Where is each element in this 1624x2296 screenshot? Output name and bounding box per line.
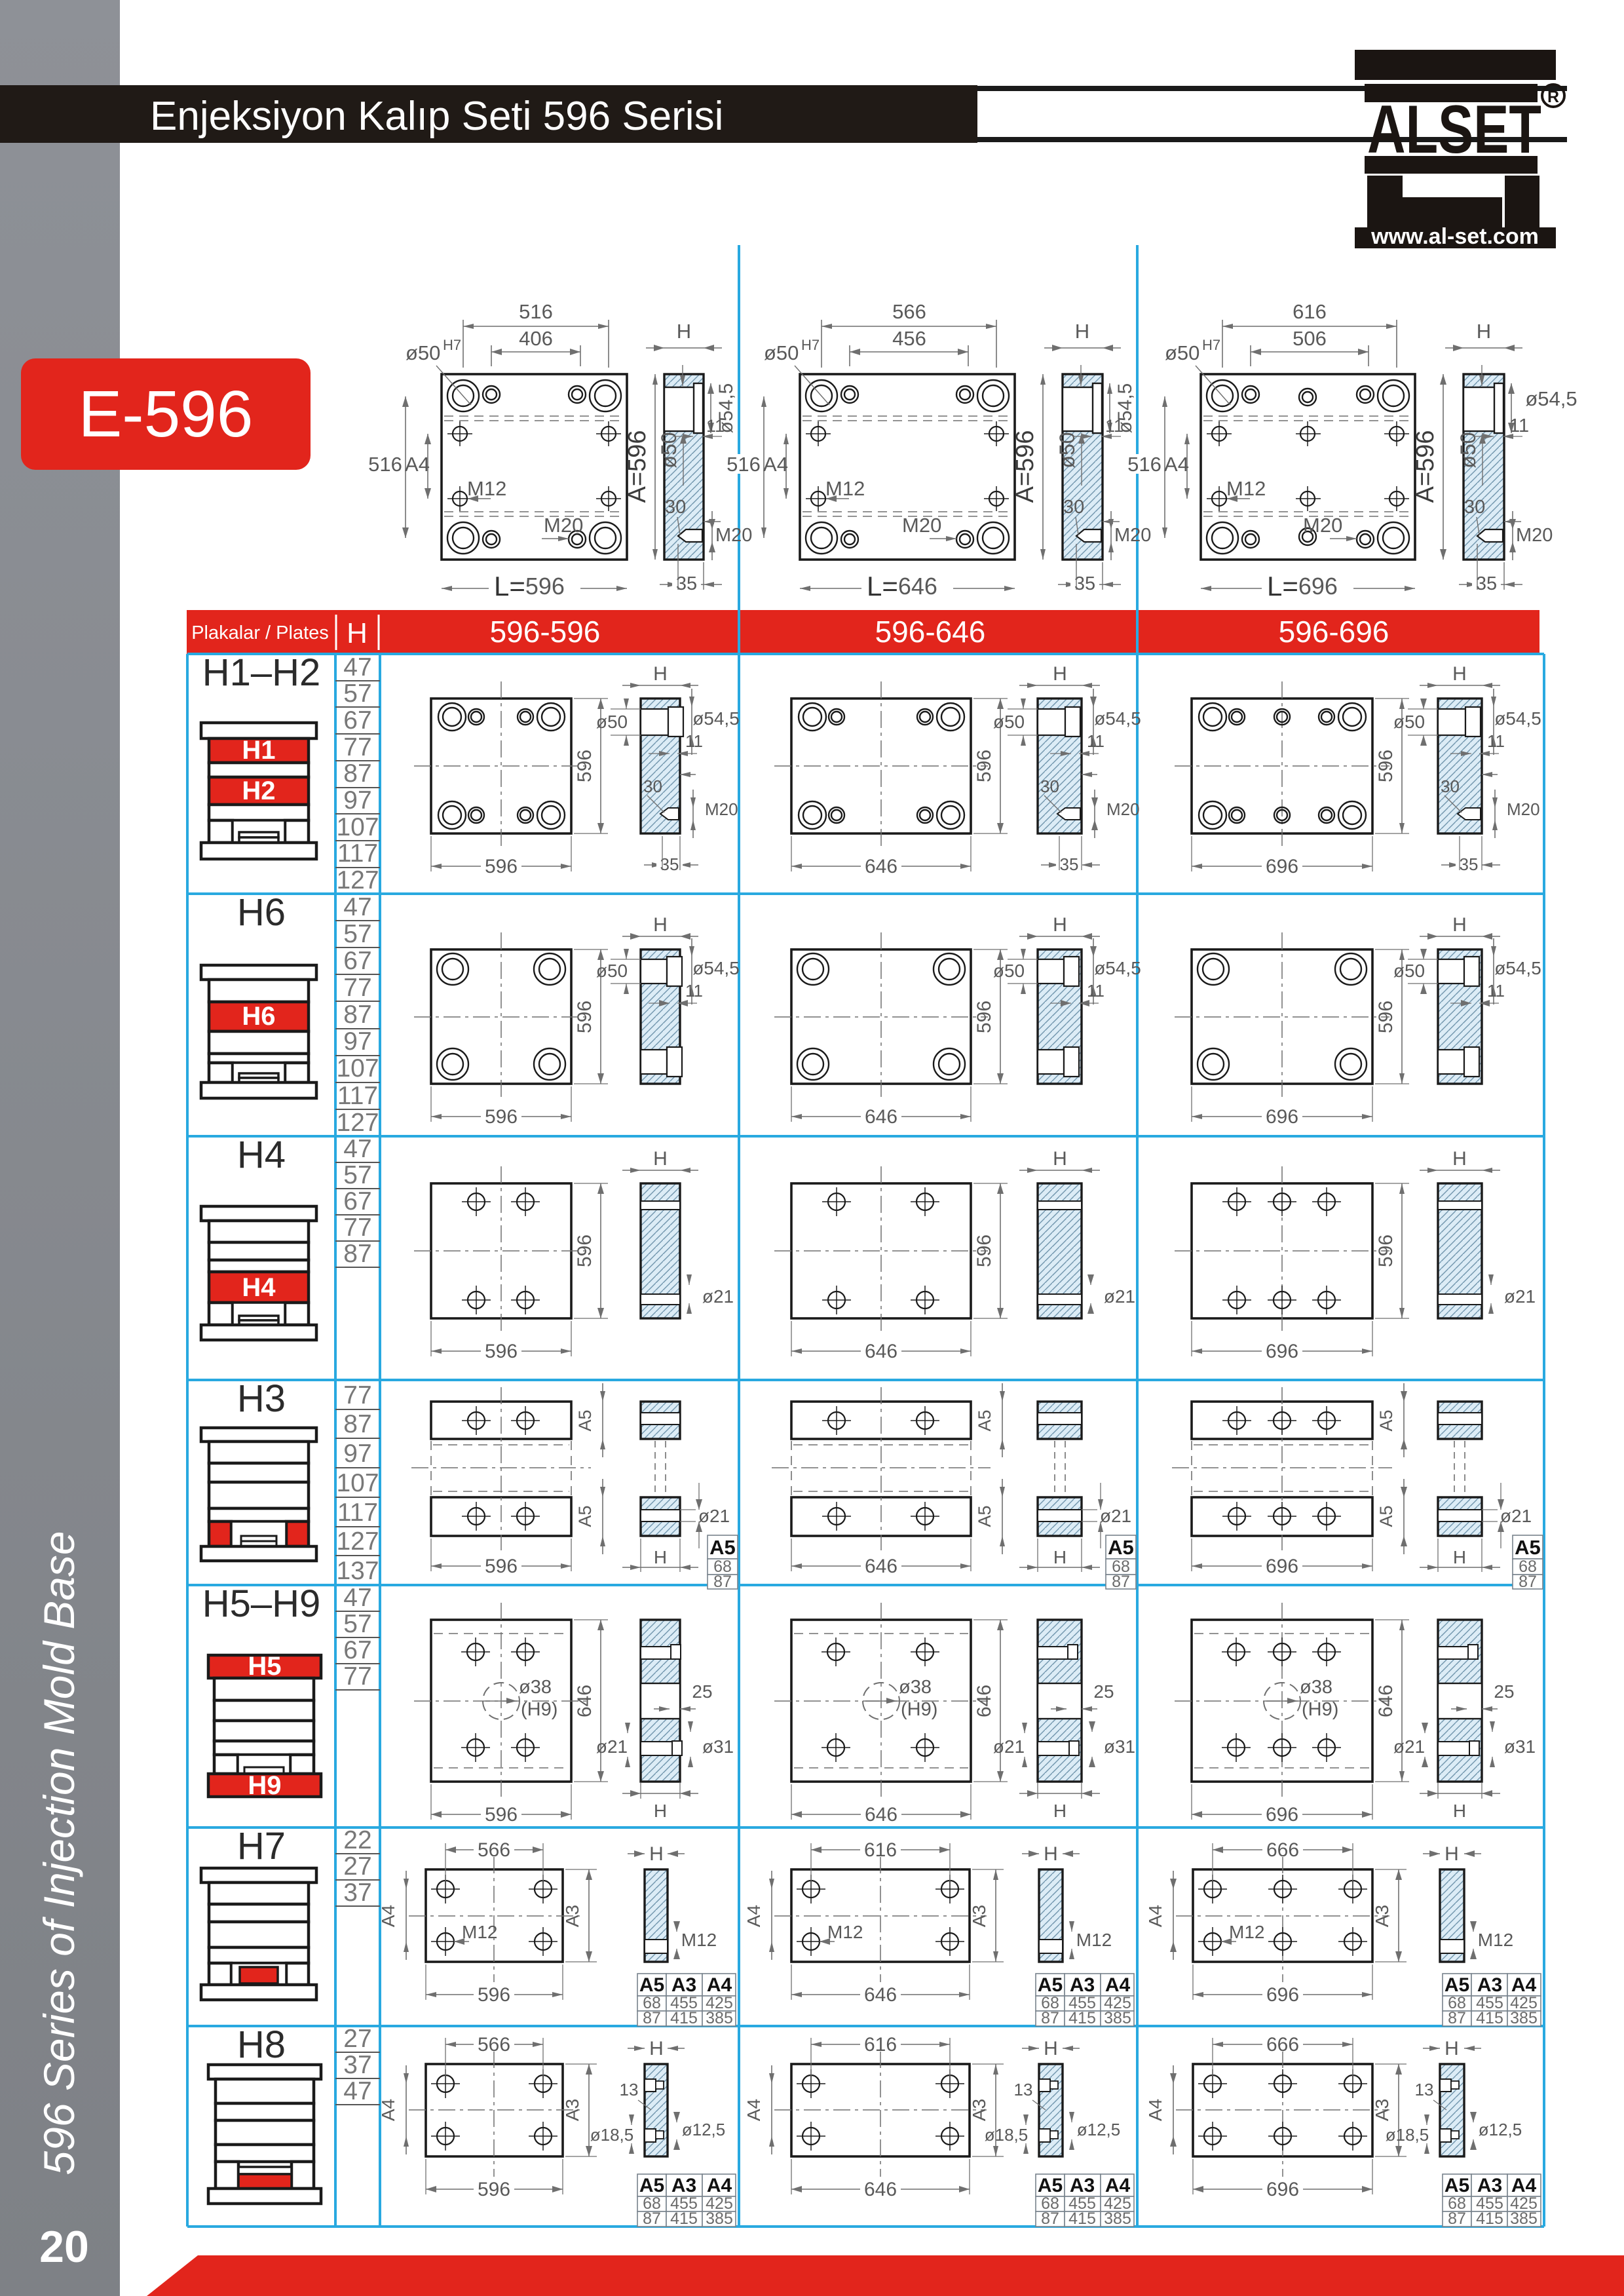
svg-text:87: 87 (713, 1573, 732, 1591)
svg-text:A5: A5 (639, 1974, 664, 1996)
svg-text:ø21: ø21 (1504, 1286, 1536, 1307)
svg-text:696: 696 (1266, 1341, 1298, 1362)
svg-text:(H9): (H9) (901, 1699, 937, 1720)
svg-text:596: 596 (973, 750, 995, 782)
svg-text:57: 57 (343, 920, 371, 948)
svg-text:57: 57 (343, 1610, 371, 1638)
svg-text:646: 646 (865, 856, 897, 877)
svg-text:596: 596 (574, 1001, 595, 1033)
svg-text:37: 37 (343, 2051, 371, 2079)
svg-text:11: 11 (1509, 415, 1529, 436)
svg-text:646: 646 (574, 1685, 595, 1717)
svg-text:A5: A5 (1515, 1536, 1541, 1559)
svg-text:646: 646 (865, 1106, 897, 1128)
svg-text:H: H (677, 320, 691, 343)
svg-text:H: H (1477, 320, 1491, 343)
svg-text:77: 77 (343, 1662, 371, 1691)
svg-text:87: 87 (1448, 2009, 1466, 2027)
svg-text:ø21: ø21 (596, 1736, 628, 1757)
svg-text:A3: A3 (671, 2175, 696, 2196)
svg-text:M20: M20 (1507, 799, 1540, 819)
svg-text:87: 87 (343, 1240, 371, 1268)
svg-text:30: 30 (1464, 497, 1485, 518)
svg-text:35: 35 (1074, 573, 1095, 594)
svg-text:A5: A5 (575, 1505, 595, 1527)
svg-text:516: 516 (727, 453, 761, 476)
svg-text:25: 25 (692, 1681, 712, 1702)
svg-text:L=696: L=696 (1267, 571, 1338, 602)
svg-text:57: 57 (343, 1161, 371, 1189)
svg-text:M12: M12 (825, 477, 865, 500)
svg-text:27: 27 (343, 1852, 371, 1881)
svg-text:385: 385 (706, 2210, 733, 2228)
svg-text:87: 87 (1519, 1573, 1537, 1591)
svg-text:516: 516 (519, 300, 553, 323)
svg-text:M20: M20 (1114, 525, 1151, 546)
svg-text:11: 11 (685, 981, 703, 1001)
svg-text:566: 566 (478, 2034, 510, 2056)
svg-text:57: 57 (343, 679, 371, 708)
svg-text:646: 646 (1375, 1685, 1397, 1717)
svg-text:117: 117 (337, 839, 378, 868)
svg-text:ø38: ø38 (519, 1677, 552, 1698)
svg-text:67: 67 (343, 706, 371, 735)
svg-text:696: 696 (1266, 1106, 1298, 1128)
svg-text:H: H (1053, 1801, 1067, 1821)
svg-text:87: 87 (343, 1410, 371, 1438)
svg-text:11: 11 (1087, 981, 1105, 1001)
svg-text:87: 87 (343, 1001, 371, 1029)
svg-text:566: 566 (892, 300, 926, 323)
svg-text:H: H (649, 1843, 664, 1865)
svg-text:ø54,5: ø54,5 (692, 958, 740, 978)
svg-text:M12: M12 (681, 1930, 717, 1950)
svg-text:H7: H7 (1202, 337, 1220, 353)
svg-text:406: 406 (519, 327, 553, 350)
svg-text:H9: H9 (248, 1771, 281, 1800)
svg-text:ø50: ø50 (1456, 432, 1480, 468)
svg-text:87: 87 (643, 2009, 661, 2027)
svg-text:A3: A3 (1070, 2175, 1095, 2196)
svg-text:596: 596 (1375, 1001, 1397, 1033)
svg-text:646: 646 (865, 1804, 897, 1826)
svg-text:H: H (1445, 2038, 1459, 2059)
svg-text:H7: H7 (237, 1825, 286, 1867)
svg-text:H7: H7 (801, 337, 820, 353)
svg-text:646: 646 (864, 2179, 897, 2200)
svg-text:13: 13 (1014, 2080, 1033, 2099)
svg-text:(H9): (H9) (1302, 1699, 1338, 1720)
svg-text:35: 35 (660, 854, 679, 874)
svg-text:77: 77 (343, 1214, 371, 1242)
svg-text:A4: A4 (744, 2099, 764, 2121)
svg-text:385: 385 (1510, 2210, 1538, 2228)
svg-text:30: 30 (665, 497, 686, 518)
svg-text:H7: H7 (443, 337, 461, 353)
svg-text:646: 646 (865, 1341, 897, 1362)
svg-text:H: H (347, 617, 368, 649)
svg-text:ø21: ø21 (1393, 1736, 1425, 1757)
svg-text:A3: A3 (1372, 1905, 1392, 1927)
svg-text:H: H (1445, 1843, 1459, 1865)
svg-text:127: 127 (336, 866, 379, 894)
svg-text:A4: A4 (405, 453, 430, 476)
svg-text:A4: A4 (763, 453, 788, 476)
svg-text:97: 97 (343, 1027, 371, 1056)
svg-text:117: 117 (337, 1082, 378, 1110)
svg-text:H: H (1053, 663, 1067, 685)
svg-text:415: 415 (670, 2210, 698, 2228)
svg-text:H: H (1452, 1148, 1467, 1170)
svg-text:ø12,5: ø12,5 (1479, 2120, 1522, 2139)
svg-text:47: 47 (343, 1584, 371, 1612)
svg-text:596: 596 (478, 1984, 510, 2006)
svg-text:M20: M20 (544, 514, 583, 537)
svg-text:35: 35 (1476, 573, 1497, 594)
svg-text:M12: M12 (1226, 477, 1266, 500)
svg-text:67: 67 (343, 947, 371, 975)
svg-text:H4: H4 (242, 1273, 276, 1302)
svg-text:47: 47 (343, 893, 371, 921)
svg-text:ø31: ø31 (1104, 1736, 1135, 1757)
svg-text:H: H (1453, 1801, 1466, 1821)
svg-text:www.al-set.com: www.al-set.com (1370, 224, 1539, 249)
svg-text:ø50: ø50 (1393, 961, 1425, 981)
svg-text:616: 616 (864, 2034, 897, 2056)
svg-text:67: 67 (343, 1187, 371, 1215)
svg-text:47: 47 (343, 1135, 371, 1163)
svg-text:H3: H3 (237, 1377, 286, 1420)
svg-text:A4: A4 (707, 1974, 732, 1996)
svg-text:596: 596 (973, 1001, 995, 1033)
svg-text:A5: A5 (1376, 1505, 1396, 1527)
svg-text:H: H (1053, 914, 1067, 936)
svg-text:H: H (1044, 2038, 1058, 2059)
svg-text:ø50: ø50 (1165, 341, 1199, 364)
svg-text:ø50: ø50 (764, 341, 799, 364)
svg-text:107: 107 (336, 1469, 379, 1497)
svg-text:H: H (1044, 1843, 1058, 1865)
svg-text:ø31: ø31 (1504, 1736, 1536, 1757)
svg-text:H: H (653, 1148, 668, 1170)
svg-text:M20: M20 (1516, 525, 1553, 546)
svg-text:ø50: ø50 (657, 432, 681, 468)
svg-text:646: 646 (864, 1984, 897, 2006)
svg-text:37: 37 (343, 1879, 371, 1907)
svg-text:A4: A4 (707, 2175, 732, 2196)
svg-text:11: 11 (1087, 731, 1105, 751)
svg-text:385: 385 (1104, 2009, 1131, 2027)
svg-text:A4: A4 (378, 2099, 398, 2121)
svg-text:H1: H1 (242, 736, 275, 765)
svg-text:H: H (654, 1547, 667, 1567)
svg-text:A4: A4 (1511, 1974, 1537, 1996)
svg-text:77: 77 (343, 974, 371, 1002)
svg-text:A4: A4 (378, 1905, 398, 1927)
svg-text:ø12,5: ø12,5 (1077, 2120, 1121, 2139)
svg-text:A=596: A=596 (624, 430, 651, 503)
svg-text:H5: H5 (248, 1652, 281, 1681)
svg-text:596: 596 (973, 1234, 995, 1267)
svg-text:A5: A5 (1445, 2175, 1469, 2196)
svg-text:ø31: ø31 (702, 1736, 734, 1757)
svg-text:ø21: ø21 (1500, 1506, 1532, 1526)
svg-text:A5: A5 (575, 1409, 595, 1431)
svg-text:ø54,5: ø54,5 (1094, 958, 1141, 978)
svg-text:415: 415 (670, 2009, 698, 2027)
svg-text:506: 506 (1293, 327, 1327, 350)
svg-text:A5: A5 (1376, 1409, 1396, 1431)
svg-text:596: 596 (478, 2179, 510, 2200)
svg-text:M12: M12 (467, 477, 506, 500)
svg-text:A5: A5 (1038, 1974, 1063, 1996)
svg-text:696: 696 (1266, 856, 1298, 877)
svg-text:ø18,5: ø18,5 (985, 2125, 1029, 2145)
svg-text:30: 30 (1040, 776, 1059, 796)
svg-text:H: H (1453, 1547, 1466, 1567)
svg-text:456: 456 (892, 327, 926, 350)
svg-text:77: 77 (343, 733, 371, 761)
svg-text:696: 696 (1266, 2179, 1299, 2200)
svg-text:566: 566 (478, 1839, 510, 1861)
svg-text:87: 87 (1041, 2210, 1059, 2228)
svg-text:127: 127 (336, 1527, 379, 1556)
svg-text:A3: A3 (562, 2099, 582, 2121)
svg-text:696: 696 (1266, 1556, 1298, 1577)
svg-text:ø21: ø21 (1104, 1286, 1135, 1307)
svg-text:ø50: ø50 (1393, 712, 1425, 732)
svg-text:666: 666 (1266, 1839, 1299, 1861)
svg-text:596 Series of Injection Mold B: 596 Series of Injection Mold Base (35, 1531, 83, 2175)
svg-text:ø38: ø38 (1300, 1677, 1332, 1698)
svg-text:11: 11 (706, 416, 725, 436)
svg-text:ø18,5: ø18,5 (1386, 2125, 1429, 2145)
svg-text:H6: H6 (237, 891, 286, 934)
svg-text:M20: M20 (1106, 799, 1140, 819)
svg-text:(H9): (H9) (521, 1699, 557, 1720)
svg-text:137: 137 (336, 1557, 379, 1585)
svg-text:666: 666 (1266, 2034, 1299, 2056)
svg-text:22: 22 (343, 1826, 371, 1854)
svg-text:ø50: ø50 (406, 341, 440, 364)
svg-text:596-646: 596-646 (875, 615, 986, 649)
svg-text:ø54,5: ø54,5 (692, 708, 740, 729)
svg-text:596: 596 (1375, 750, 1397, 782)
svg-text:516: 516 (1127, 453, 1161, 476)
svg-text:A5: A5 (1038, 2175, 1063, 2196)
svg-text:ø21: ø21 (698, 1506, 730, 1526)
svg-text:A4: A4 (1145, 1905, 1165, 1927)
svg-text:A4: A4 (1145, 2099, 1165, 2121)
svg-text:596: 596 (485, 1556, 518, 1577)
svg-text:107: 107 (336, 813, 379, 841)
svg-text:67: 67 (343, 1636, 371, 1664)
svg-text:87: 87 (1112, 1573, 1130, 1591)
svg-text:415: 415 (1476, 2009, 1503, 2027)
svg-text:M20: M20 (902, 514, 941, 537)
svg-text:A4: A4 (1164, 453, 1189, 476)
svg-text:47: 47 (343, 653, 371, 681)
svg-text:30: 30 (1063, 497, 1084, 518)
svg-text:87: 87 (643, 2210, 661, 2228)
svg-text:M12: M12 (1076, 1930, 1112, 1950)
svg-text:385: 385 (1510, 2009, 1538, 2027)
svg-text:M12: M12 (462, 1922, 497, 1942)
svg-text:H4: H4 (237, 1134, 286, 1176)
svg-text:ø54,5: ø54,5 (1094, 708, 1141, 729)
svg-text:696: 696 (1266, 1984, 1299, 2006)
svg-text:596: 596 (574, 750, 595, 782)
svg-text:A4: A4 (1511, 2175, 1537, 2196)
svg-text:R: R (1547, 88, 1559, 106)
svg-text:M12: M12 (1478, 1930, 1513, 1950)
svg-text:696: 696 (1266, 1804, 1298, 1826)
svg-text:87: 87 (1448, 2210, 1466, 2228)
svg-text:A4: A4 (744, 1905, 764, 1927)
svg-text:87: 87 (343, 759, 371, 788)
svg-text:646: 646 (973, 1685, 995, 1717)
svg-text:30: 30 (1441, 776, 1460, 796)
svg-text:ø12,5: ø12,5 (682, 2120, 726, 2139)
svg-text:ø54,5: ø54,5 (1494, 958, 1541, 978)
svg-text:M20: M20 (1303, 514, 1342, 537)
svg-text:A5: A5 (975, 1409, 994, 1431)
svg-text:77: 77 (343, 1381, 371, 1409)
svg-text:30: 30 (643, 776, 662, 796)
svg-text:A3: A3 (1372, 2099, 1392, 2121)
svg-text:H: H (654, 1801, 667, 1821)
svg-text:A5: A5 (1445, 1974, 1469, 1996)
svg-text:646: 646 (865, 1556, 897, 1577)
svg-text:Plakalar / Plates: Plakalar / Plates (191, 622, 329, 643)
svg-text:L=596: L=596 (494, 571, 565, 602)
svg-text:H: H (1075, 320, 1089, 343)
svg-text:Enjeksiyon Kalıp Seti 596 Seri: Enjeksiyon Kalıp Seti 596 Serisi (150, 94, 723, 139)
svg-text:127: 127 (336, 1109, 379, 1137)
svg-text:ø38: ø38 (899, 1677, 932, 1698)
svg-text:596: 596 (1375, 1234, 1397, 1267)
svg-text:A5: A5 (1108, 1536, 1134, 1559)
svg-text:415: 415 (1476, 2210, 1503, 2228)
svg-text:87: 87 (1041, 2009, 1059, 2027)
svg-text:ø50: ø50 (1055, 432, 1079, 468)
svg-text:ø21: ø21 (1100, 1506, 1131, 1526)
svg-text:616: 616 (864, 1839, 897, 1861)
svg-text:385: 385 (1104, 2210, 1131, 2228)
svg-text:596: 596 (485, 1804, 518, 1826)
svg-text:ø50: ø50 (993, 961, 1025, 981)
svg-text:11: 11 (1487, 731, 1505, 751)
svg-text:A=596: A=596 (1412, 430, 1439, 503)
svg-text:H: H (653, 914, 668, 936)
svg-text:H6: H6 (242, 1002, 275, 1031)
svg-text:H1–H2: H1–H2 (202, 651, 321, 694)
svg-text:M20: M20 (705, 799, 738, 819)
svg-text:ø18,5: ø18,5 (590, 2125, 634, 2145)
svg-text:27: 27 (343, 2025, 371, 2053)
svg-text:A5: A5 (709, 1536, 736, 1559)
svg-text:415: 415 (1068, 2009, 1096, 2027)
svg-text:596: 596 (485, 1106, 518, 1128)
svg-text:A4: A4 (1105, 1974, 1131, 1996)
svg-text:ø54,5: ø54,5 (1494, 708, 1541, 729)
svg-text:A5: A5 (639, 2175, 664, 2196)
svg-text:ø50: ø50 (596, 961, 628, 981)
svg-text:H: H (653, 663, 668, 685)
svg-text:35: 35 (676, 573, 697, 594)
svg-text:ø50: ø50 (596, 712, 628, 732)
svg-text:ALSET: ALSET (1367, 91, 1541, 167)
svg-text:A3: A3 (1070, 1974, 1095, 1996)
svg-text:117: 117 (337, 1499, 378, 1527)
svg-text:A3: A3 (1477, 1974, 1502, 1996)
svg-text:11: 11 (1487, 981, 1505, 1001)
svg-text:A3: A3 (969, 2099, 989, 2121)
svg-text:A5: A5 (975, 1505, 994, 1527)
svg-text:H: H (649, 2038, 664, 2059)
svg-text:107: 107 (336, 1054, 379, 1082)
svg-text:97: 97 (343, 786, 371, 814)
svg-text:H8: H8 (237, 2023, 286, 2066)
svg-text:11: 11 (685, 731, 703, 751)
svg-text:H: H (1053, 1148, 1067, 1170)
svg-text:97: 97 (343, 1440, 371, 1468)
svg-text:A=596: A=596 (1011, 430, 1039, 503)
svg-text:13: 13 (1415, 2080, 1434, 2099)
svg-text:13: 13 (620, 2080, 639, 2099)
svg-text:385: 385 (706, 2009, 733, 2027)
svg-text:A4: A4 (1105, 2175, 1131, 2196)
svg-text:H: H (1053, 1547, 1067, 1567)
svg-text:A3: A3 (969, 1905, 989, 1927)
svg-text:11: 11 (1105, 416, 1124, 436)
svg-text:ø21: ø21 (993, 1736, 1025, 1757)
svg-text:H: H (1452, 914, 1467, 936)
svg-text:596: 596 (574, 1234, 595, 1267)
svg-text:L=646: L=646 (867, 571, 937, 602)
svg-text:35: 35 (1060, 854, 1079, 874)
svg-text:25: 25 (1494, 1681, 1514, 1702)
svg-text:596: 596 (485, 1341, 518, 1362)
svg-text:ø50: ø50 (993, 712, 1025, 732)
svg-text:35: 35 (1460, 854, 1479, 874)
svg-text:M20: M20 (715, 525, 752, 546)
svg-text:ø54,5: ø54,5 (1525, 387, 1577, 410)
svg-text:E-596: E-596 (79, 377, 254, 451)
svg-text:A3: A3 (562, 1905, 582, 1927)
svg-text:20: 20 (39, 2222, 89, 2272)
svg-text:H: H (1452, 663, 1467, 685)
svg-text:H2: H2 (242, 776, 275, 805)
svg-text:25: 25 (1093, 1681, 1114, 1702)
svg-text:616: 616 (1293, 300, 1327, 323)
svg-text:M12: M12 (827, 1922, 863, 1942)
svg-text:415: 415 (1068, 2210, 1096, 2228)
svg-text:516: 516 (368, 453, 402, 476)
svg-text:A3: A3 (1477, 2175, 1502, 2196)
svg-text:M12: M12 (1229, 1922, 1264, 1942)
svg-text:ø21: ø21 (702, 1286, 734, 1307)
svg-text:596: 596 (485, 856, 518, 877)
svg-text:H5–H9: H5–H9 (202, 1582, 321, 1625)
svg-text:596-696: 596-696 (1279, 615, 1389, 649)
svg-text:596-596: 596-596 (490, 615, 601, 649)
svg-text:47: 47 (343, 2077, 371, 2105)
svg-text:A3: A3 (671, 1974, 696, 1996)
